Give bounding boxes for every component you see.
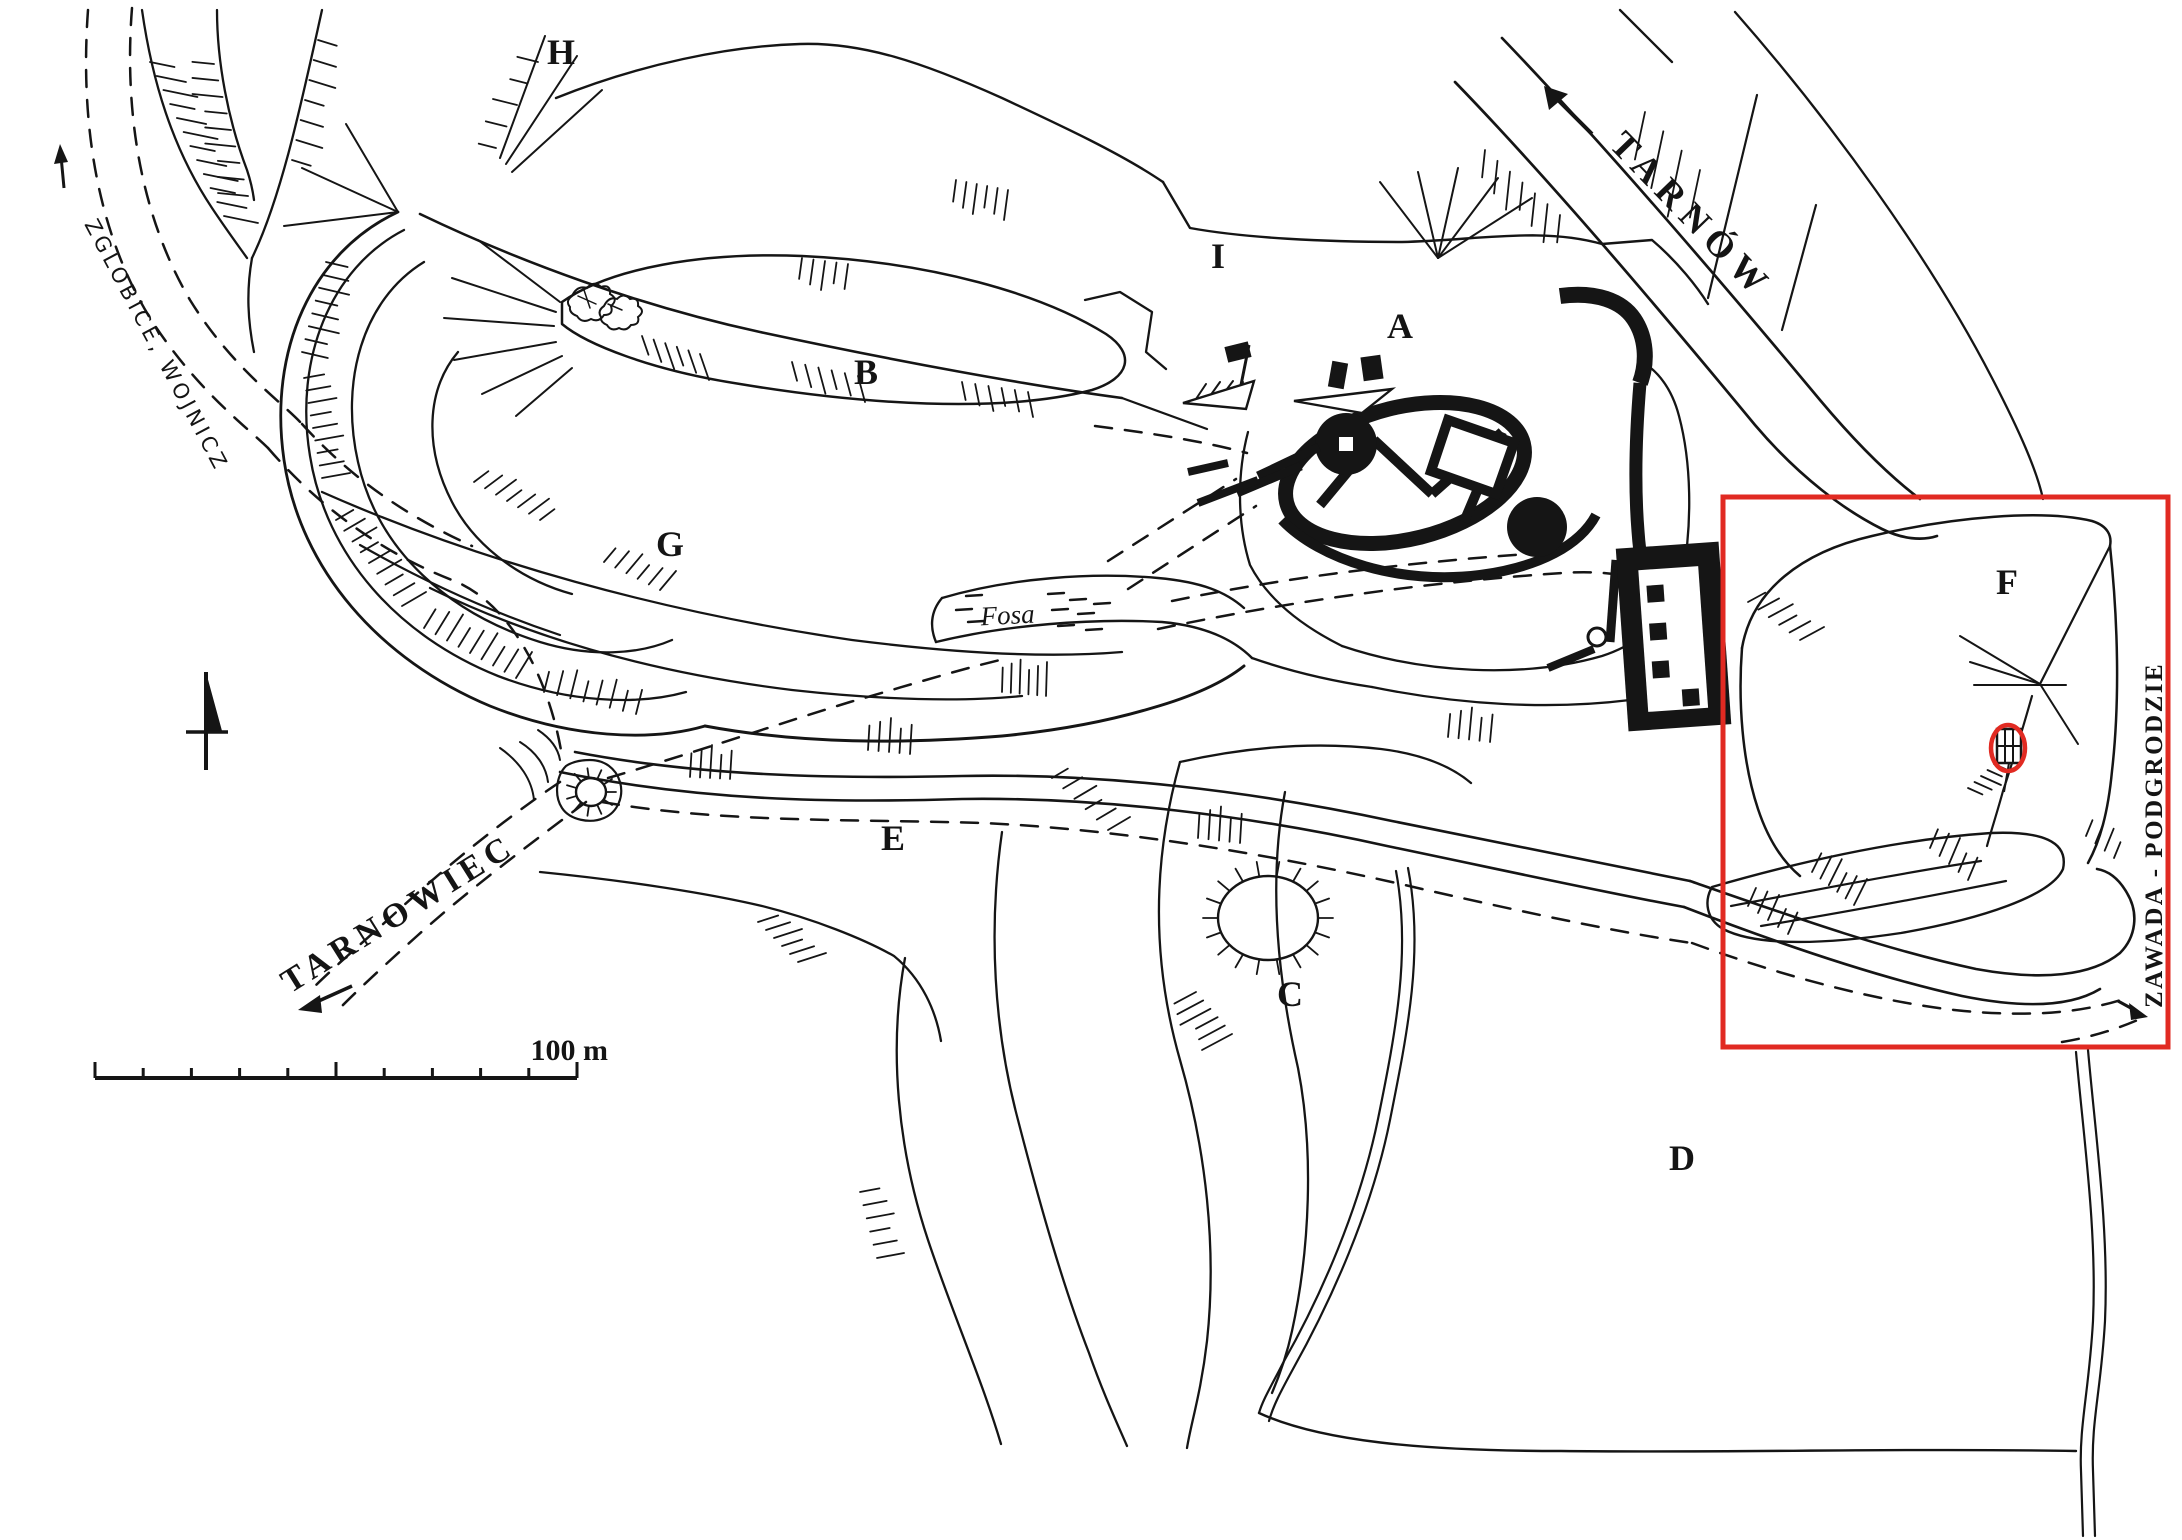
tower-courtyard: [1339, 437, 1353, 451]
hatch-tick: [1196, 1017, 1218, 1029]
hatch-tick: [177, 118, 206, 124]
hatch-tick: [1199, 1026, 1225, 1040]
hatch-tick: [485, 475, 502, 488]
hatch-tick: [994, 188, 997, 214]
hatch-tick: [1177, 1000, 1203, 1014]
mound-tick: [567, 796, 577, 799]
area-label-h: H: [547, 32, 575, 72]
dashed-road: [2062, 1019, 2140, 1042]
hatch-tick: [205, 144, 235, 147]
hatch-tick: [311, 412, 331, 416]
mound-tick: [1293, 954, 1301, 967]
cross-wall: [1374, 440, 1432, 494]
area-label-e: E: [881, 818, 905, 858]
mound-outline: [576, 778, 606, 806]
detail-line: [512, 90, 602, 172]
mound-tick: [1218, 881, 1229, 891]
hatch-tick: [1988, 770, 2002, 776]
area-label-g: G: [656, 524, 684, 564]
hatch-tick: [604, 548, 616, 562]
hatch-tick: [1968, 788, 1982, 794]
gate-tower: [1328, 361, 1348, 389]
hatch-tick: [665, 343, 674, 369]
crescent-rampart: [1560, 295, 1645, 383]
hatch-tick: [710, 745, 712, 778]
hatch-tick: [192, 62, 214, 64]
hatch-tick-group: [292, 40, 337, 166]
hatch-tick: [730, 751, 732, 779]
castle-ruins: [1183, 295, 1731, 732]
wall-fragment: [1610, 560, 1616, 642]
contour-line: [420, 214, 1122, 398]
area-label-a: A: [1387, 306, 1413, 346]
contour-line: [1259, 871, 1402, 1413]
hatch-tick: [962, 382, 966, 400]
hatch-tick: [1002, 668, 1003, 692]
hatch-tick: [867, 1213, 894, 1218]
building-pillar: [1652, 660, 1670, 678]
hatch-tick-group: [962, 382, 1033, 417]
hatch-tick: [318, 40, 337, 46]
hatch-tick: [447, 615, 463, 641]
hatch-tick-group: [799, 258, 848, 290]
hatch-tick-group: [868, 718, 912, 754]
moat-scribble: [1052, 609, 1068, 610]
hatch-tick: [805, 365, 811, 387]
hatch-tick: [988, 386, 993, 411]
detail-line: [1960, 636, 2040, 684]
hatch-tick: [205, 127, 231, 130]
area-label-i: I: [1211, 236, 1225, 276]
dashed-road: [1108, 479, 1236, 561]
hatch-tick: [792, 362, 797, 381]
detail-line: [1970, 662, 2040, 684]
hatch-tick: [424, 609, 436, 628]
area-label-d: D: [1669, 1138, 1695, 1178]
hatch-tick: [507, 490, 521, 501]
mound-tick: [597, 770, 601, 779]
hatch-tick: [1506, 172, 1510, 210]
contour-line: [897, 958, 1001, 1444]
hatch-tick-group: [544, 670, 642, 714]
mound-tick: [1236, 869, 1244, 882]
hatch-tick: [677, 347, 683, 366]
hatch-tick: [863, 1201, 886, 1205]
hatch-tick-group: [1198, 807, 1242, 844]
hatch-tick: [975, 384, 979, 406]
hatch-tick: [910, 725, 912, 754]
hatch-tick: [1028, 392, 1033, 417]
hatch-tick: [402, 592, 426, 606]
hatch-tick: [1968, 858, 1977, 880]
contour-line: [705, 666, 1244, 741]
zglobice-direction-arrow-icon: [54, 144, 68, 188]
hatch-tick: [1020, 660, 1021, 694]
hatch-tick: [821, 261, 825, 290]
hatch-tick: [636, 690, 642, 714]
hatch-tick: [493, 647, 505, 666]
hatch-tick: [1046, 662, 1047, 696]
hatch-tick: [1482, 150, 1485, 177]
hatch-tick: [217, 202, 246, 208]
moat-scribble: [1086, 629, 1102, 630]
hatch-tick: [1779, 615, 1796, 624]
hatch-tick: [313, 424, 337, 428]
dashed-road: [608, 660, 1000, 778]
hatch-tick: [544, 672, 549, 692]
mound-tick: [1315, 899, 1329, 904]
hatch-tick: [1800, 627, 1824, 640]
contour-line: [556, 44, 1163, 182]
contour-line: [2040, 546, 2110, 684]
hatch-tick: [700, 749, 702, 777]
hatch-tick: [900, 729, 901, 753]
hatch-tick: [479, 144, 496, 148]
hatch-tick: [292, 160, 311, 166]
contour-line: [1180, 746, 1471, 783]
hatch-tick: [1004, 190, 1008, 220]
hatch-tick: [470, 631, 484, 653]
hatch-tick: [486, 121, 507, 126]
contour-line: [2076, 1052, 2094, 1536]
hatch-tick: [642, 336, 648, 355]
hatch-tick: [615, 551, 629, 567]
wall-fragment: [1548, 649, 1594, 668]
hatch-tick: [782, 940, 802, 946]
hatch-tick: [1812, 853, 1821, 872]
hatch-tick: [322, 473, 350, 478]
contour-line: [1272, 792, 1308, 1393]
north-arrow-icon: [186, 672, 228, 770]
terrain-contours: [142, 10, 2134, 1536]
hatch-tick: [302, 352, 328, 358]
moat-scribble: [1094, 603, 1110, 604]
hatch-tick: [877, 1253, 904, 1258]
hatch-tick: [1758, 892, 1767, 914]
hatch-tick: [316, 301, 338, 306]
contour-line: [500, 748, 534, 800]
hatch-tick: [482, 633, 498, 659]
moat-scribble: [1058, 625, 1074, 626]
hatch-tick: [305, 100, 324, 106]
hatch-tick: [1829, 859, 1842, 885]
hatch-tick: [1011, 664, 1012, 693]
mound-tick: [1236, 954, 1244, 967]
hatch-tick: [758, 916, 778, 922]
hatch-tick: [688, 350, 696, 372]
hatch-tick: [218, 161, 240, 163]
hatch-tick: [834, 263, 837, 284]
area-label-f: F: [1996, 562, 2018, 602]
hatch-tick: [790, 946, 814, 954]
circled-structure: [1997, 729, 2021, 792]
hatch-tick: [860, 1188, 879, 1192]
hatch-tick: [832, 370, 837, 389]
hatch-tick: [1981, 776, 2001, 785]
mound-tick: [587, 806, 588, 816]
hatch-tick: [394, 583, 415, 595]
hatch-tick: [1769, 604, 1793, 617]
dashed-road: [268, 448, 562, 756]
hatch-tick: [1448, 714, 1450, 737]
hatch-tick: [319, 288, 349, 295]
contour-line: [217, 10, 254, 200]
hatch-tick: [296, 140, 322, 148]
site-plan-map: 100 m A B C D E F G H I TARNÓW ZGLOBICE,…: [0, 0, 2182, 1540]
hatch-tick: [557, 671, 563, 695]
contour-line: [1620, 10, 1672, 62]
moat-scribble: [1048, 593, 1064, 594]
hatch-tick-group: [860, 1188, 904, 1258]
hatch-tick: [301, 120, 323, 127]
hatch-tick: [1459, 711, 1462, 739]
dashed-road: [602, 802, 1692, 943]
hatch-tick: [1230, 817, 1231, 841]
scale-bar-label: 100 m: [531, 1034, 609, 1067]
detail-line: [516, 368, 572, 416]
detail-line: [608, 304, 622, 310]
hatch-tick: [1108, 817, 1130, 830]
hatch-tick: [1219, 807, 1221, 841]
hatch-tick: [529, 499, 549, 514]
hatch-tick: [1174, 992, 1196, 1004]
mound-tick: [1207, 899, 1221, 904]
contour-line: [520, 742, 548, 782]
hatch-tick: [211, 188, 235, 193]
hatch-tick: [1975, 782, 1992, 790]
detail-line: [454, 342, 556, 360]
hatch-tick: [1837, 873, 1846, 892]
mound-tick: [1293, 869, 1301, 882]
contour-line: [248, 258, 254, 352]
mound-tick: [1257, 959, 1260, 974]
moat-scribble: [1070, 599, 1086, 600]
contour-line: [1741, 648, 1800, 876]
detail-line: [302, 168, 398, 212]
hatch-tick-group: [192, 62, 248, 196]
hatch-tick: [517, 57, 538, 62]
scale-bar: [95, 1062, 577, 1078]
hatch-tick-group: [150, 62, 258, 223]
hatch-tick: [766, 922, 790, 930]
hatch-tick: [459, 628, 471, 647]
contour-line: [560, 772, 1684, 907]
mound-tick: [1257, 862, 1260, 877]
hatch-tick-group: [1482, 150, 1560, 242]
detail-line: [452, 278, 556, 312]
detail-line: [346, 124, 398, 212]
hatch-tick: [889, 718, 891, 752]
contour-line: [1684, 907, 2100, 1004]
hatch-tick: [510, 79, 527, 83]
contour-line: [306, 230, 686, 700]
mound-tick: [1306, 881, 1317, 891]
hatch-tick-group: [1812, 853, 1867, 905]
hatch-tick: [1790, 621, 1811, 632]
hatch-tick: [306, 386, 330, 390]
contour-line: [252, 10, 322, 258]
hatch-tick: [436, 612, 450, 634]
hatch-tick: [505, 649, 519, 671]
hatch-tick: [224, 216, 258, 223]
mound-tick: [1218, 945, 1229, 955]
detail-line: [482, 356, 562, 394]
road-label-zglobice-wojnicz: ZGLOBICE, WOJNICZ: [80, 215, 234, 476]
mound-tick: [1277, 959, 1280, 974]
hatch-tick: [170, 104, 194, 109]
contour-line: [2088, 1050, 2106, 1536]
hatch-tick: [799, 258, 802, 279]
hatch-tick: [570, 670, 577, 698]
hatch-tick: [963, 182, 966, 208]
hatch-tick: [1037, 666, 1038, 695]
hatch-tick: [973, 184, 977, 214]
mound-tick: [567, 785, 577, 788]
hatch-tick: [315, 436, 343, 441]
detail-line: [478, 240, 560, 302]
hatch-tick: [610, 680, 617, 708]
mound-tick: [1207, 932, 1221, 937]
building-pillar: [1649, 622, 1667, 640]
hatch-tick: [638, 565, 650, 579]
hatch-tick: [205, 111, 227, 113]
contour-line: [432, 352, 572, 594]
map-page: 100 m A B C D E F G H I TARNÓW ZGLOBICE,…: [0, 0, 2182, 1540]
hatch-tick: [157, 76, 186, 82]
hatch-tick: [1202, 1034, 1232, 1050]
hatch-tick: [626, 554, 642, 573]
detail-line: [2040, 684, 2078, 744]
hatch-tick: [1469, 708, 1472, 740]
contour-line: [575, 752, 1690, 881]
hatch-tick: [323, 275, 349, 281]
area-label-c: C: [1277, 974, 1303, 1014]
dashed-road: [1095, 426, 1247, 453]
contour-line: [1259, 1413, 2076, 1451]
area-label-b: B: [854, 352, 878, 392]
hatch-tick: [493, 99, 517, 105]
contour-line: [562, 255, 1125, 404]
hatch-tick: [1074, 786, 1096, 799]
hatch-tick: [309, 80, 335, 88]
contour-line: [995, 832, 1127, 1446]
tarnow-direction-arrow-icon: [1544, 86, 1592, 134]
contour-line: [540, 872, 941, 1041]
hatch-tick: [774, 929, 802, 938]
hatch-tick: [845, 264, 848, 289]
hatch-tick: [474, 471, 488, 482]
hatch-tick: [818, 368, 825, 394]
hatch-tick-group: [474, 471, 554, 520]
hatch-tick: [660, 571, 676, 590]
hatch-tick-group: [302, 262, 349, 358]
gate-tower: [1360, 355, 1383, 382]
hatch-tick: [1028, 670, 1029, 694]
hatch-tick: [518, 494, 535, 507]
hatch-tick: [304, 374, 324, 378]
contour-line: [932, 598, 942, 642]
hatch-tick: [2086, 820, 2092, 836]
hatch-tick: [309, 326, 339, 333]
detail-line: [284, 212, 398, 226]
contour-line: [1735, 12, 2043, 499]
hatch-tick: [1097, 808, 1116, 819]
hatch-tick-group: [1002, 660, 1047, 696]
hatch-tick: [2114, 842, 2120, 858]
well: [1588, 628, 1606, 646]
hatch-tick: [1490, 714, 1493, 742]
contour-line: [1690, 869, 2134, 975]
hatch-tick: [654, 340, 662, 362]
hatch-tick: [192, 78, 218, 81]
hatch-tick: [597, 680, 603, 704]
hatch-tick-group: [1448, 708, 1493, 743]
mound-tick: [1306, 945, 1317, 955]
hatch-tick: [879, 722, 881, 751]
moat-scribble: [956, 609, 972, 610]
hatch-tick: [344, 519, 365, 531]
detail-line: [1438, 198, 1532, 258]
hatch-tick: [984, 186, 987, 208]
building-pillar: [1682, 688, 1700, 706]
hatch-tick: [320, 461, 344, 465]
hatch-tick: [649, 568, 663, 584]
hatch-tick: [1180, 1009, 1210, 1025]
hatch-tick: [1198, 814, 1199, 838]
building-pillar: [1646, 585, 1664, 603]
round-bastion: [1507, 497, 1567, 557]
hatch-tick-group: [1748, 593, 1824, 640]
contour-line: [1252, 658, 1372, 687]
hatch-tick: [1949, 838, 1960, 864]
hatch-tick-group: [953, 180, 1008, 220]
hatch-tick: [1494, 161, 1497, 194]
hatch-tick: [309, 398, 337, 403]
detail-line: [444, 318, 554, 326]
hatch-tick: [810, 260, 813, 285]
hatch-tick: [798, 953, 826, 962]
road-label-tarnowiec: TARNOWIEC: [275, 827, 523, 1001]
hatch-tick: [314, 60, 336, 67]
moat-scribble: [966, 595, 982, 596]
bush-scribble: [600, 296, 642, 330]
hatch-tick: [496, 480, 516, 495]
hatch-tick: [2105, 829, 2114, 851]
manor-building: [1616, 542, 1732, 732]
hatch-tick-group: [642, 336, 709, 380]
hatch-tick: [868, 726, 869, 750]
hatch-tick: [516, 652, 532, 678]
hatch-tick-group: [2086, 820, 2120, 858]
mound-tick: [1315, 932, 1329, 937]
wall-fragment: [1188, 463, 1228, 472]
contour-line: [1782, 205, 1816, 330]
dashed-road: [302, 424, 472, 546]
mound-outline: [1218, 876, 1318, 960]
mound-feature: [1203, 862, 1333, 974]
mound-tick: [597, 805, 601, 814]
hatch-tick: [184, 132, 218, 139]
hatch-tick: [386, 574, 403, 584]
hatch-tick: [845, 373, 851, 395]
hatch-tick: [1480, 718, 1482, 741]
hatch-tick: [690, 753, 691, 777]
moat-scribble: [1078, 613, 1094, 614]
hatch-tick: [1557, 215, 1560, 242]
hatch-tick: [190, 146, 214, 151]
hatch-tick: [1846, 876, 1857, 898]
hatch-tick: [953, 180, 956, 202]
